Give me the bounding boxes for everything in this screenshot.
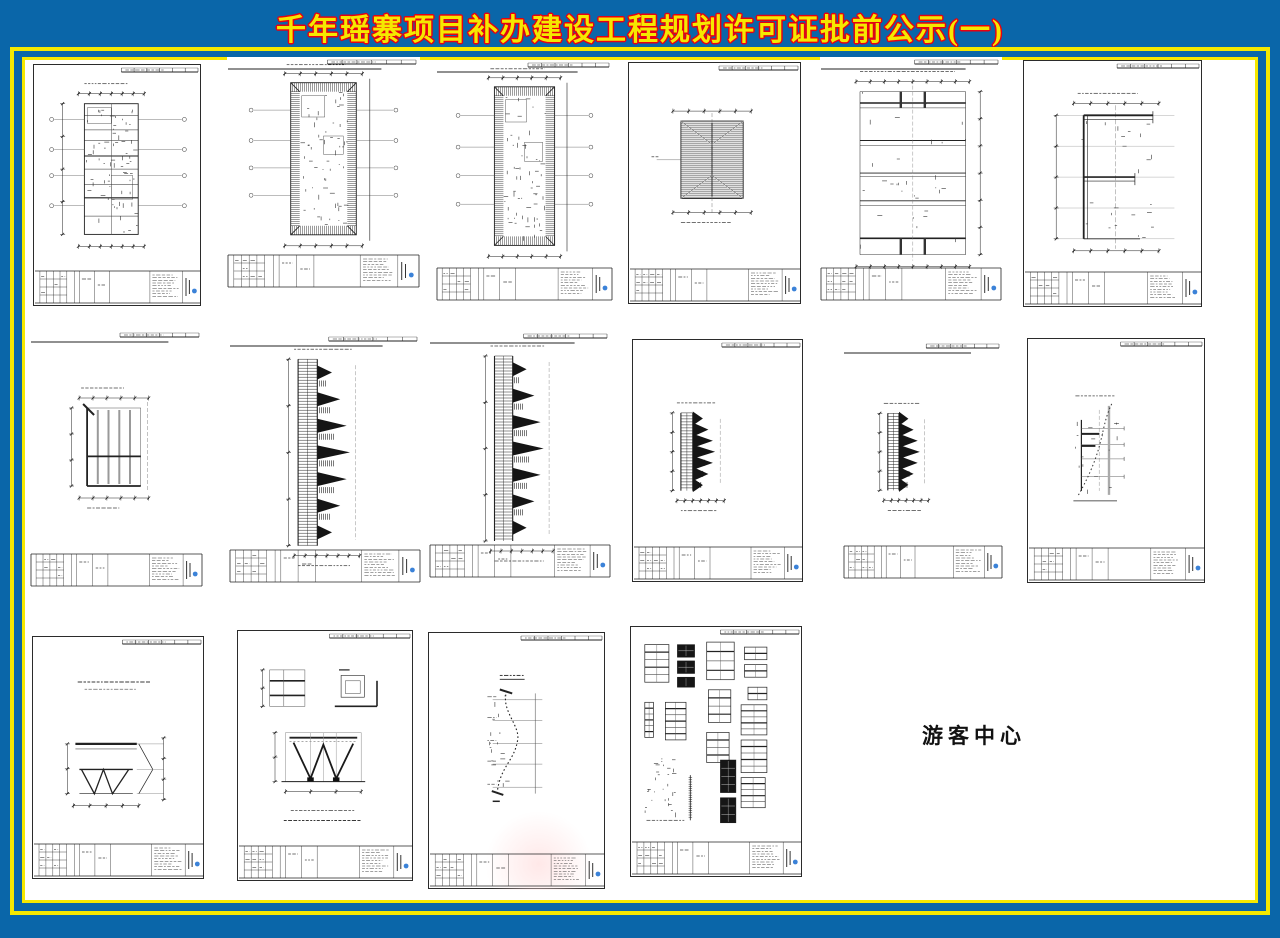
sheet-07 [30,330,203,590]
sheet-14 [237,630,413,881]
drawing-content-sheet-06 [1024,61,1203,308]
sheet-16 [630,626,802,877]
drawing-content-sheet-01 [34,65,202,307]
visitor-center-label: 游客中心 [922,720,1026,750]
drawing-content-sheet-13 [33,637,205,880]
sheet-06 [1023,60,1202,307]
sheet-05 [820,57,1002,304]
sheet-08 [229,334,421,586]
drawing-content-sheet-04 [629,63,802,305]
drawing-content-sheet-16 [631,627,803,878]
drawing-content-sheet-10 [633,340,804,583]
sheet-13 [32,636,204,879]
drawing-content-sheet-09 [429,331,611,581]
drawing-content-sheet-02 [227,57,420,291]
red-stamp-watermark [486,811,592,890]
sheet-12 [1027,338,1205,583]
drawing-content-sheet-15 [429,633,606,890]
drawing-content-sheet-03 [436,60,613,304]
drawing-content-sheet-08 [229,334,421,586]
drawing-content-sheet-12 [1028,339,1206,584]
sheet-02 [227,57,420,291]
sheet-10 [632,339,803,582]
drawing-content-sheet-14 [238,631,414,882]
sheets-container [0,0,1280,938]
sheet-11 [843,341,1003,582]
drawing-content-sheet-07 [30,330,203,590]
sheet-03 [436,60,613,304]
sheet-04 [628,62,801,304]
sheet-01 [33,64,201,306]
sheet-09 [429,331,611,581]
sheet-15 [428,632,605,889]
drawing-content-sheet-11 [843,341,1003,582]
drawing-content-sheet-05 [820,57,1002,304]
